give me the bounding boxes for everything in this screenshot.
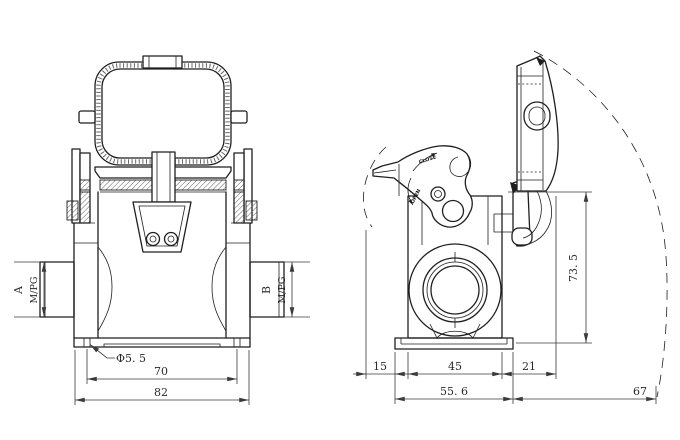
height-value: 73. 5 [567,254,580,282]
hole-spacing-value: 70 [154,365,168,378]
lever-overhang-value: 15 [373,360,387,373]
side-view: CLOSE OPEN 73. 5 15 45 21 [353,51,667,404]
cover-swing-radius-value: 67 [633,385,647,398]
front-view: A M/PG B M/PG Φ5. 5 70 82 [12,56,310,405]
taper-curve-left [98,247,112,331]
base-flange-side [395,338,513,349]
lever-swing-arc [363,147,386,227]
bail-peg-right [231,111,247,123]
dim-hole-spacing: 70 [87,349,237,384]
dim-port-b: B M/PG [260,262,310,317]
drawing-page: A M/PG B M/PG Φ5. 5 70 82 [0,0,680,440]
cable-entry-a [40,262,74,317]
bail-inner [102,69,224,158]
port-b-label: B [260,286,273,294]
center-bar [152,152,175,202]
dim-port-a: A M/PG [12,262,44,317]
bail-outer [95,62,231,165]
hinge-ear-left [67,149,90,223]
bail-peg-left [79,111,95,123]
bail-clamp [79,56,247,165]
cover-offset-value: 21 [522,360,536,373]
base-flange-front [74,338,250,347]
mount-hole-diameter: Φ5. 5 [116,352,146,365]
taper-curve-right [212,247,226,331]
mount-slot-right [234,338,240,347]
hinge-ear-right [234,149,257,223]
flange-width-value: 82 [154,386,168,399]
body-width-value: 45 [448,360,462,373]
technical-drawing: A M/PG B M/PG Φ5. 5 70 82 [0,0,680,440]
bail-hatch-band [99,66,228,162]
flange-width-side-value: 55. 6 [440,385,468,398]
mount-slot-left [84,338,90,347]
port-a-thread: M/PG [29,277,40,304]
port-b-thread: M/PG [277,277,288,304]
cover-stop-lug [512,228,532,245]
port-a-label: A [12,285,25,295]
